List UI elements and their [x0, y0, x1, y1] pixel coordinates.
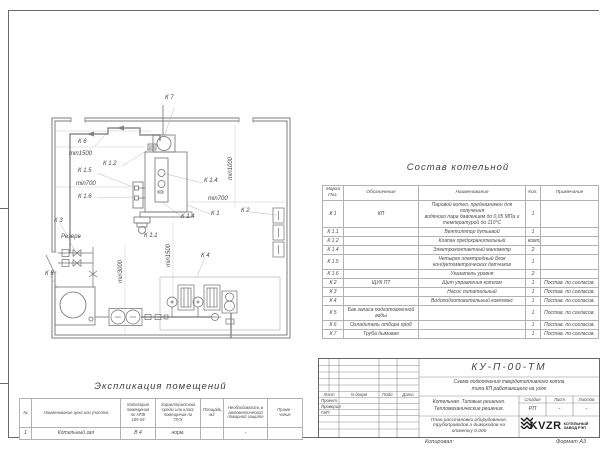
column-header: Характеристика среды или класс помещения… — [156, 399, 201, 428]
table-row: К 1.1Вентилятор дутьевой1 — [323, 227, 599, 236]
table-cell — [541, 254, 599, 269]
drawing-sheet: К 7К 6min1500К 1.2К 1.5min700К 1.6К 1.4m… — [0, 0, 600, 450]
plan-label: К 1.1 — [144, 233, 158, 239]
plan-label: К 1.5 — [78, 168, 92, 174]
frame-tick — [0, 383, 8, 384]
table-cell — [419, 305, 526, 320]
table-cell: В 4 — [121, 428, 156, 440]
table-cell: К 1.4 — [323, 245, 344, 254]
plan-label: К 1.6 — [78, 194, 92, 200]
table-cell — [344, 296, 419, 305]
logo-caption: КОТЕЛЬНЫЙ ЗАВОД РЭП — [564, 422, 589, 431]
table-cell: 1 — [526, 200, 541, 227]
table-cell: 1 — [20, 428, 32, 440]
table-cell: К 7 — [323, 329, 344, 338]
table-cell — [419, 329, 526, 338]
table-cell: норм. — [156, 428, 201, 440]
floor-plan: К 7К 6min1500К 1.2К 1.5min700К 1.6К 1.4m… — [45, 95, 315, 345]
table-cell: Постав. по согласов. — [541, 278, 599, 287]
table-cell: 1 — [526, 296, 541, 305]
table-cell — [541, 227, 599, 236]
table-cell: К 1 — [323, 200, 344, 227]
col-list: Лист — [319, 392, 339, 398]
table-cell — [541, 200, 599, 227]
column-header: Марка Поз. — [323, 186, 344, 201]
object-title: Котельная. Типовые решения. Тепломеханич… — [419, 399, 519, 412]
table-cell — [344, 236, 419, 245]
frame-top-line — [8, 10, 599, 11]
table-cell: 2 — [526, 245, 541, 254]
plan-label: К 1.2 — [103, 161, 117, 167]
stage-value: РП — [519, 404, 546, 415]
table-cell: К 1.5 — [323, 254, 344, 269]
sheet-title: План расстановки оборудования, трубопров… — [419, 418, 519, 436]
bom-title: Состав котельной — [318, 162, 598, 173]
table-cell: К 2 — [323, 278, 344, 287]
plan-label: min700 — [208, 196, 228, 202]
table-cell: Указатель уровня — [419, 269, 526, 278]
table-cell: 1 — [526, 305, 541, 320]
table-row: К 1.4Электроконтактный манометр2 — [323, 245, 599, 254]
table-cell: компл. — [526, 236, 541, 245]
plan-label: Резерв — [61, 234, 81, 240]
table-row: К 6Охладитель отбора проб1Постав. по сог… — [323, 320, 599, 329]
bom-table: Марка Поз.ОбозначениеНаименованиеКол.При… — [322, 185, 599, 339]
factory-logo: KVZR КОТЕЛЬНЫЙ ЗАВОД РЭП — [520, 416, 598, 436]
plan-label: К 1.4 — [181, 214, 195, 220]
table-cell: Постав. по согласов. — [541, 287, 599, 296]
plan-label: К 6 — [78, 139, 87, 145]
header-row: Марка Поз.ОбозначениеНаименованиеКол.При… — [323, 186, 599, 201]
table-cell: Четырех электродный блок кондуктометриче… — [419, 254, 526, 269]
table-cell: Постав. по согласов. — [541, 329, 599, 338]
table-cell — [344, 254, 419, 269]
table-cell: Насос питательный — [419, 287, 526, 296]
col-podp: Подп. — [379, 392, 397, 398]
plan-label: min1000 — [228, 157, 234, 180]
coil-logo-icon — [520, 416, 533, 429]
scheme-title: Схема подключения твердотопливного котла… — [419, 379, 599, 392]
storage-tank — [55, 287, 109, 325]
column-header: Обозначение — [344, 186, 419, 201]
column-header: № — [20, 399, 32, 428]
table-cell: К 1.2 — [323, 236, 344, 245]
column-header: Приме - чание — [268, 399, 303, 428]
table-cell: Труба дымовая — [344, 329, 419, 338]
feed-pumps — [58, 247, 97, 287]
table-cell — [344, 287, 419, 296]
table-cell — [541, 245, 599, 254]
role-gip: ГИП — [321, 410, 340, 416]
table-cell: 1 — [526, 278, 541, 287]
water-treatment-complex — [160, 277, 280, 330]
table-cell: 1 — [526, 287, 541, 296]
table-cell — [541, 269, 599, 278]
explication-title: Экспликация помещений — [19, 381, 302, 392]
sheet-value: - — [546, 404, 573, 415]
table-cell: Водоподготовительный комплекс — [419, 296, 526, 305]
column-header: Площадь, м2 — [201, 399, 224, 428]
table-cell: 1 — [526, 329, 541, 338]
frame-tick — [0, 208, 8, 209]
table-cell: К 5 — [323, 305, 344, 320]
plan-label: К 7 — [165, 95, 174, 101]
plan-label: К 4 — [201, 253, 210, 259]
column-header: Наименование — [419, 186, 526, 201]
plan-label: min1500 — [69, 151, 92, 157]
table-cell: КП — [344, 200, 419, 227]
plan-label: min700 — [76, 181, 96, 187]
table-cell: Электроконтактный манометр — [419, 245, 526, 254]
table-cell: Котельный зал — [32, 428, 121, 440]
table-cell: ЩУК ПТ — [344, 278, 419, 287]
table-cell: Постав. по согласов. — [541, 305, 599, 320]
table-cell: К 3 — [323, 287, 344, 296]
table-row: К 7Труба дымовая1Постав. по согласов. — [323, 329, 599, 338]
table-row: К 1.5Четырех электродный блок кондуктоме… — [323, 254, 599, 269]
table-cell: К 6 — [323, 320, 344, 329]
explication-table: №Наименование цеха или участкаКатегория … — [19, 398, 303, 440]
table-cell: - — [224, 428, 268, 440]
plan-label: К 1 — [211, 211, 220, 217]
sheets-col-header: Листов — [573, 397, 600, 404]
table-cell: Постав. по согласов. — [541, 296, 599, 305]
table-cell: Постав. по согласов. — [541, 320, 599, 329]
plan-label: К 2 — [241, 208, 250, 214]
table-cell — [344, 245, 419, 254]
table-cell — [344, 227, 419, 236]
table-cell: Вентилятор дутьевой — [419, 227, 526, 236]
format-note: Формат А3 — [556, 439, 586, 445]
header-row: №Наименование цеха или участкаКатегория … — [20, 399, 303, 428]
floor-plan-drawing — [45, 95, 315, 345]
table-cell: К 1.6 — [323, 269, 344, 278]
table-cell — [541, 236, 599, 245]
kopiroval-note: Копировал: — [425, 439, 454, 445]
table-row: К 5Бак запаса подготовленной воды1Постав… — [323, 305, 599, 320]
control-panels — [273, 208, 284, 257]
table-cell: К 4 — [323, 296, 344, 305]
logo-text: KVZR — [530, 420, 562, 432]
col-data: Дата — [397, 392, 419, 398]
table-cell: Охладитель отбора проб — [344, 320, 419, 329]
col-ndoc: N докум — [339, 392, 379, 398]
column-header: Категория помещения по НПБ 105-03 — [121, 399, 156, 428]
table-cell: 1 — [526, 254, 541, 269]
sheets-value: - — [573, 404, 600, 415]
title-block: КУ-П-00-ТМ Схема подключения твердотопли… — [318, 358, 600, 438]
table-cell: Щит управления котлом — [419, 278, 526, 287]
table-cell — [201, 428, 224, 440]
table-cell: Клапан предохранительный — [419, 236, 526, 245]
table-cell: 2 — [526, 269, 541, 278]
column-header: Необходимость в автоматической пожарной … — [224, 399, 268, 428]
column-header: Кол. — [526, 186, 541, 201]
table-row: 1Котельный залВ 4норм.- — [20, 428, 303, 440]
table-row: К 4Водоподготовительный комплекс1Постав.… — [323, 296, 599, 305]
table-cell: К 1.1 — [323, 227, 344, 236]
table-row: К 3Насос питательный1Постав. по согласов… — [323, 287, 599, 296]
table-cell: Бак запаса подготовленной воды — [344, 305, 419, 320]
table-cell — [419, 320, 526, 329]
column-header: Примечание — [541, 186, 599, 201]
stage-col-header: Стадия — [519, 397, 546, 404]
sheet-col-header: Лист — [546, 397, 573, 404]
table-row: К 1.6Указатель уровня2 — [323, 269, 599, 278]
plan-label: min3000 — [118, 260, 124, 283]
frame-left-line — [8, 10, 9, 438]
table-cell: 1 — [526, 320, 541, 329]
plan-label: К 5 — [45, 271, 54, 277]
table-cell — [344, 269, 419, 278]
plan-label: К 3 — [54, 218, 63, 224]
column-header: Наименование цеха или участка — [32, 399, 121, 428]
table-cell: 1 — [526, 227, 541, 236]
plan-label: К 1.4 — [204, 178, 218, 184]
table-cell — [268, 428, 303, 440]
doc-number: КУ-П-00-ТМ — [419, 360, 599, 376]
table-cell: Паровой котел, предназначен для получени… — [419, 200, 526, 227]
table-row: К 1.2Клапан предохранительныйкомпл. — [323, 236, 599, 245]
table-row: К 1КППаровой котел, предназначен для пол… — [323, 200, 599, 227]
plan-label: min1500 — [166, 244, 172, 267]
table-row: К 2ЩУК ПТЩит управления котлом1Постав. п… — [323, 278, 599, 287]
